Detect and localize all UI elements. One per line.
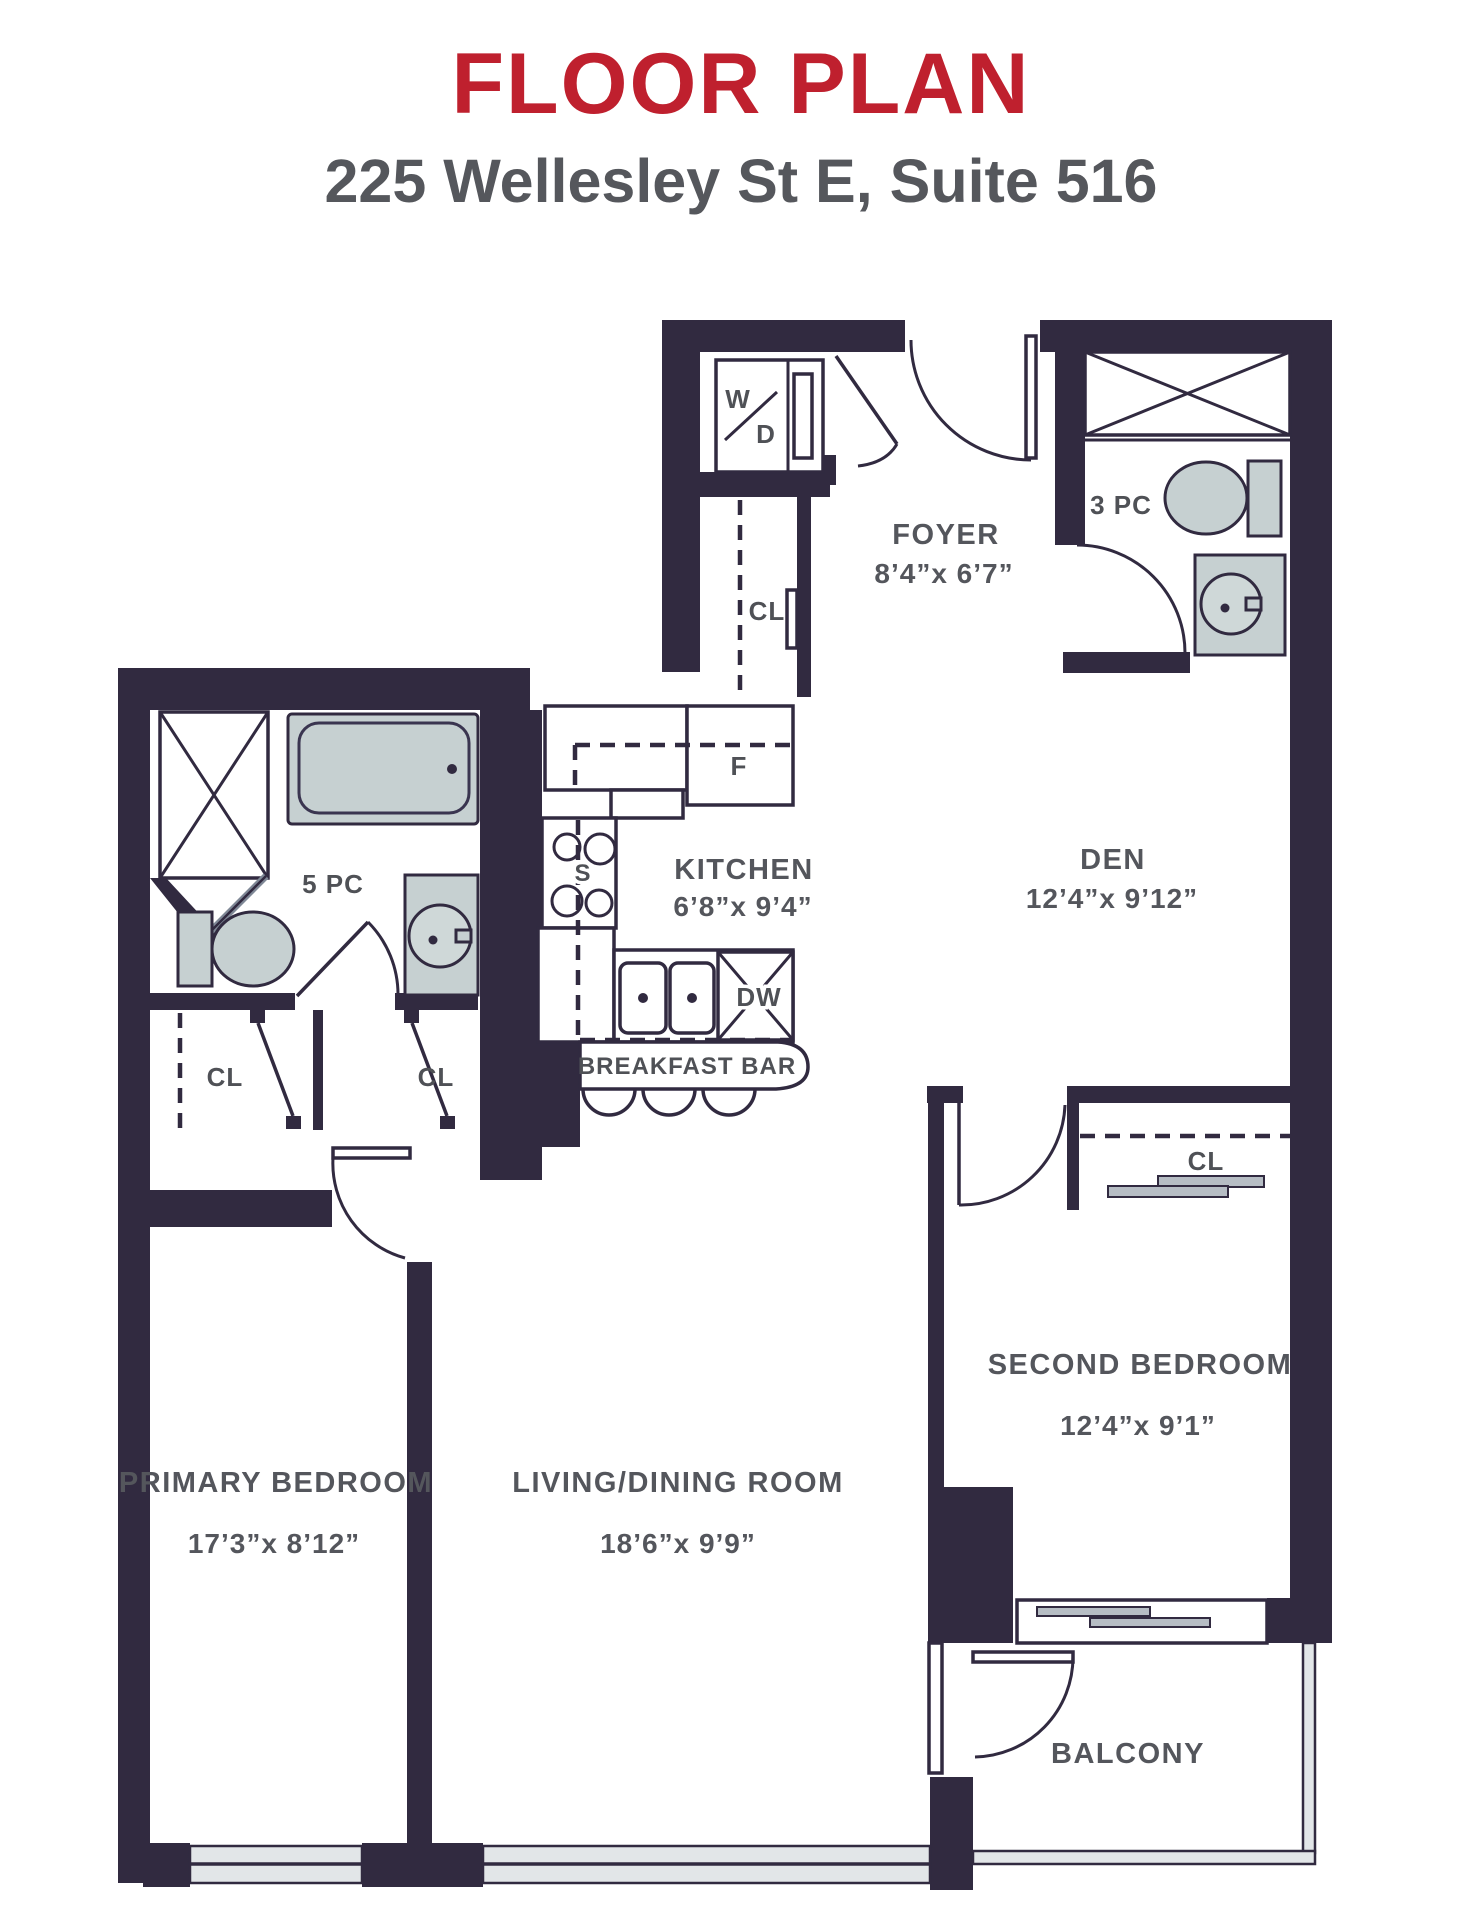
left-closet-door: [258, 1023, 293, 1116]
bath3pc-door-swing: [1077, 545, 1185, 653]
kitchen-counter-step: [611, 790, 683, 818]
living-dining-label: LIVING/DINING ROOM: [512, 1467, 844, 1499]
second-bedroom-window-pane-1: [1037, 1607, 1150, 1616]
bar-stool-2: [643, 1089, 695, 1115]
balcony-rail-right: [1303, 1643, 1315, 1853]
breakfast-bar-label: BREAKFAST BAR: [578, 1053, 796, 1080]
second-bedroom-closet-label: CL: [1188, 1146, 1225, 1176]
entry-door-leaf: [1026, 336, 1036, 458]
toilet-3pc-bowl: [1165, 462, 1247, 534]
second-bedroom-closet-slider-2: [1108, 1186, 1228, 1197]
second-bedroom-window-pane-2: [1090, 1618, 1210, 1627]
foyer-label: FOYER: [892, 519, 999, 551]
second-bedroom-door-swing: [959, 1105, 1065, 1205]
left-closet-label: CL: [207, 1062, 244, 1092]
right-closet-label: CL: [418, 1062, 455, 1092]
bath3pc-label: 3 PC: [1090, 490, 1152, 520]
sink-3pc-drain: [1221, 604, 1230, 613]
page-title: FLOOR PLAN: [452, 36, 1031, 132]
den-label: DEN: [1080, 844, 1146, 876]
primary-bedroom-door-leaf: [333, 1148, 410, 1158]
laundry-closet-door: [836, 356, 897, 444]
toilet-3pc-tank: [1248, 461, 1281, 536]
sink-5pc-faucet: [456, 930, 471, 942]
foyer-closet-label: CL: [749, 596, 786, 626]
right-closet-door-jamb-bottom: [440, 1116, 455, 1129]
floor-plan-page: FLOOR PLAN 225 Wellesley St E, Suite 516: [0, 0, 1483, 1920]
washer-label: W: [725, 384, 751, 414]
balcony-door-leaf: [973, 1652, 1073, 1662]
left-closet-door-jamb-bottom: [286, 1116, 301, 1129]
bath5pc-door-swing: [368, 922, 398, 996]
dishwasher-label: DW: [736, 982, 781, 1012]
toilet-5pc-bowl: [212, 912, 294, 986]
foyer-closet-slide-door: [787, 590, 797, 648]
living-dining-dims: 18’6”x 9’9”: [600, 1528, 756, 1559]
primary-bedroom-label: PRIMARY BEDROOM: [119, 1467, 433, 1499]
fridge-label: F: [731, 751, 748, 781]
stove-label: S: [574, 860, 591, 887]
bar-stool-1: [583, 1089, 635, 1115]
bathroom-5pc: [160, 712, 478, 995]
left-closet-door-jamb-top: [250, 1010, 265, 1023]
sink-5pc-drain: [429, 936, 438, 945]
toilet-5pc-tank: [178, 912, 212, 986]
washer-dryer-door-panel: [794, 374, 812, 458]
right-closet-door-jamb-top: [404, 1010, 419, 1023]
bath5pc-door-leaf: [297, 922, 368, 996]
dryer-label: D: [756, 419, 776, 449]
bathtub-drain: [447, 764, 457, 774]
laundry-closet-door-swing: [858, 444, 897, 466]
kitchen-sink-right-drain: [687, 993, 697, 1003]
primary-bedroom-dims: 17’3”x 8’12”: [188, 1528, 360, 1559]
walls: [118, 320, 1332, 1890]
page-subtitle: 225 Wellesley St E, Suite 516: [324, 147, 1157, 215]
sink-3pc-faucet: [1246, 598, 1261, 610]
balcony-label: BALCONY: [1051, 1738, 1205, 1770]
kitchen-dims: 6’8”x 9’4”: [673, 891, 812, 922]
entry-door-swing: [911, 340, 1031, 460]
balcony-rail-bottom: [973, 1851, 1315, 1864]
foyer-dims: 8’4”x 6’7”: [874, 558, 1013, 589]
kitchen-counter-top: [545, 706, 687, 790]
bath5pc-label: 5 PC: [302, 869, 364, 899]
kitchen-sink-left-drain: [638, 993, 648, 1003]
second-bedroom-label: SECOND BEDROOM: [988, 1349, 1293, 1381]
bar-stool-3: [703, 1089, 755, 1115]
primary-bedroom-door-swing: [333, 1158, 405, 1258]
floor-plan-drawing: FLOOR PLAN 225 Wellesley St E, Suite 516: [0, 0, 1483, 1920]
second-bedroom-dims: 12’4”x 9’1”: [1060, 1410, 1216, 1441]
den-dims: 12’4”x 9’12”: [1026, 883, 1198, 914]
kitchen-label: KITCHEN: [674, 854, 813, 886]
balcony-door-sidelite: [929, 1643, 942, 1773]
laundry-closet: [716, 360, 823, 472]
